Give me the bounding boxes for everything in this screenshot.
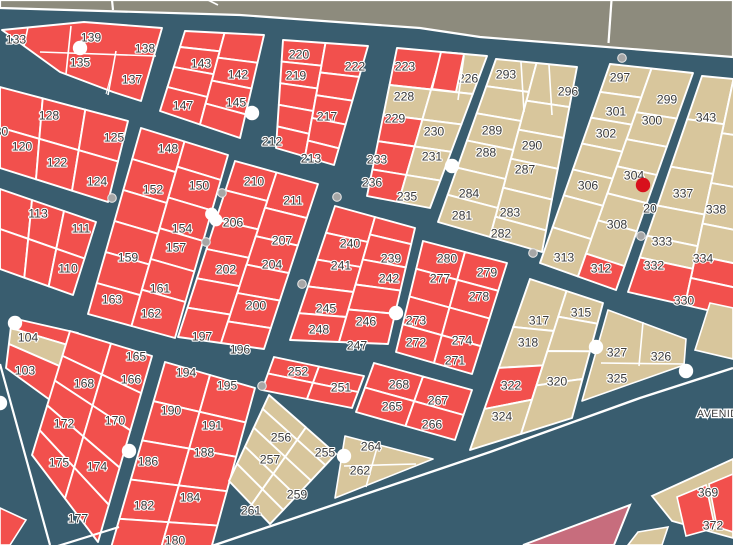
svg-text:223: 223 [395,59,416,73]
svg-text:165: 165 [126,349,147,363]
svg-text:135: 135 [70,55,91,69]
svg-text:287: 287 [515,162,536,176]
svg-text:217: 217 [317,109,338,123]
svg-text:AVENIDA: AVENIDA [697,408,733,420]
svg-text:163: 163 [102,292,123,306]
svg-text:188: 188 [194,445,215,459]
svg-text:280: 280 [437,251,458,265]
svg-text:147: 147 [173,98,194,112]
svg-text:128: 128 [39,108,60,122]
svg-text:325: 325 [607,371,628,385]
svg-text:177: 177 [68,511,89,525]
svg-text:317: 317 [529,313,550,327]
svg-text:261: 261 [241,503,262,517]
svg-text:202: 202 [216,262,237,276]
svg-text:296: 296 [558,84,579,98]
svg-text:290: 290 [522,138,543,152]
svg-text:266: 266 [422,417,443,431]
svg-text:300: 300 [642,113,663,127]
svg-text:180: 180 [165,533,186,545]
svg-text:274: 274 [452,333,473,347]
svg-text:211: 211 [283,193,303,207]
svg-text:241: 241 [331,258,352,272]
svg-text:337: 337 [673,186,694,200]
svg-text:282: 282 [491,226,512,240]
svg-text:301: 301 [606,104,627,118]
svg-text:306: 306 [578,178,599,192]
svg-text:283: 283 [500,205,521,219]
svg-text:133: 133 [6,32,27,46]
svg-text:110: 110 [58,261,78,275]
svg-text:191: 191 [202,418,223,432]
svg-text:272: 272 [406,335,427,349]
svg-text:220: 220 [289,47,310,61]
svg-text:338: 338 [706,202,727,216]
svg-text:313: 313 [554,250,575,264]
svg-text:255: 255 [315,445,336,459]
svg-text:322: 322 [501,378,522,392]
svg-text:233: 233 [367,152,388,166]
svg-text:168: 168 [74,376,95,390]
svg-text:113: 113 [28,206,48,220]
svg-text:190: 190 [161,403,182,417]
svg-text:259: 259 [287,487,308,501]
svg-text:279: 279 [477,265,498,279]
svg-text:184: 184 [180,490,201,504]
svg-text:175: 175 [49,455,70,469]
svg-text:372: 372 [703,518,724,532]
svg-text:197: 197 [192,329,213,343]
svg-text:334: 334 [693,251,714,265]
svg-text:222: 222 [345,59,366,73]
svg-text:320: 320 [547,374,568,388]
svg-text:207: 207 [272,233,293,247]
svg-text:154: 154 [172,221,193,235]
svg-text:257: 257 [260,452,281,466]
svg-text:212: 212 [262,134,283,148]
svg-text:330: 330 [674,293,695,307]
svg-text:235: 235 [397,189,418,203]
svg-text:170: 170 [105,413,126,427]
svg-text:229: 229 [385,111,406,125]
svg-text:195: 195 [217,378,238,392]
svg-text:326: 326 [651,349,672,363]
svg-text:240: 240 [340,236,361,250]
svg-text:236: 236 [362,175,383,189]
svg-text:186: 186 [138,454,159,468]
svg-text:152: 152 [143,182,164,196]
svg-text:162: 162 [141,306,162,320]
svg-text:150: 150 [189,178,210,192]
svg-text:142: 142 [228,67,249,81]
svg-text:242: 242 [379,271,400,285]
svg-text:228: 228 [394,89,415,103]
svg-text:166: 166 [121,372,142,386]
svg-text:308: 308 [607,217,628,231]
svg-text:120: 120 [12,139,33,153]
svg-text:196: 196 [230,342,251,356]
svg-text:256: 256 [271,430,292,444]
svg-text:200: 200 [246,298,267,312]
svg-text:138: 138 [135,41,156,55]
svg-text:161: 161 [150,281,171,295]
svg-text:251: 251 [331,380,352,394]
svg-text:210: 210 [244,174,265,188]
svg-text:277: 277 [430,271,451,285]
svg-text:324: 324 [492,409,513,423]
svg-text:273: 273 [406,313,427,327]
svg-text:213: 213 [301,151,322,165]
svg-text:104: 104 [18,330,39,344]
svg-text:219: 219 [286,68,307,82]
svg-text:315: 315 [571,305,592,319]
svg-text:111: 111 [72,221,91,235]
svg-text:143: 143 [191,56,212,70]
svg-text:312: 312 [591,261,612,275]
svg-text:125: 125 [104,130,125,144]
svg-text:252: 252 [288,364,309,378]
svg-text:265: 265 [382,399,403,413]
svg-text:231: 231 [422,149,443,163]
svg-text:289: 289 [482,123,503,137]
svg-text:204: 204 [262,257,283,271]
svg-text:182: 182 [134,498,155,512]
svg-text:20: 20 [643,201,657,215]
svg-text:174: 174 [87,459,108,473]
svg-text:239: 239 [381,251,402,265]
svg-text:172: 172 [54,416,75,430]
svg-text:297: 297 [610,70,631,84]
svg-text:248: 248 [309,322,330,336]
svg-text:247: 247 [347,338,368,352]
svg-text:327: 327 [607,345,628,359]
svg-text:264: 264 [361,439,382,453]
svg-text:369: 369 [698,485,719,499]
svg-text:122: 122 [47,155,68,169]
svg-text:206: 206 [223,215,244,229]
svg-text:267: 267 [428,393,449,407]
svg-text:145: 145 [226,95,247,109]
svg-text:333: 333 [652,234,673,248]
svg-text:293: 293 [496,67,517,81]
svg-text:302: 302 [596,126,617,140]
svg-text:271: 271 [445,353,466,367]
svg-text:137: 137 [122,72,143,86]
svg-text:157: 157 [166,240,187,254]
svg-text:245: 245 [316,301,337,315]
svg-text:332: 332 [644,258,665,272]
svg-text:278: 278 [469,289,490,303]
svg-text:246: 246 [356,314,377,328]
svg-text:103: 103 [15,363,36,377]
svg-text:288: 288 [476,145,497,159]
svg-text:284: 284 [459,186,480,200]
svg-text:262: 262 [350,463,371,477]
svg-text:318: 318 [518,335,539,349]
svg-text:159: 159 [118,250,139,264]
svg-text:230: 230 [424,124,445,138]
svg-text:343: 343 [696,110,717,124]
svg-text:299: 299 [657,92,678,106]
svg-text:281: 281 [452,208,473,222]
svg-text:148: 148 [158,141,179,155]
svg-text:124: 124 [87,174,108,188]
svg-text:194: 194 [176,365,197,379]
svg-text:268: 268 [389,377,410,391]
svg-text:130: 130 [0,124,8,138]
